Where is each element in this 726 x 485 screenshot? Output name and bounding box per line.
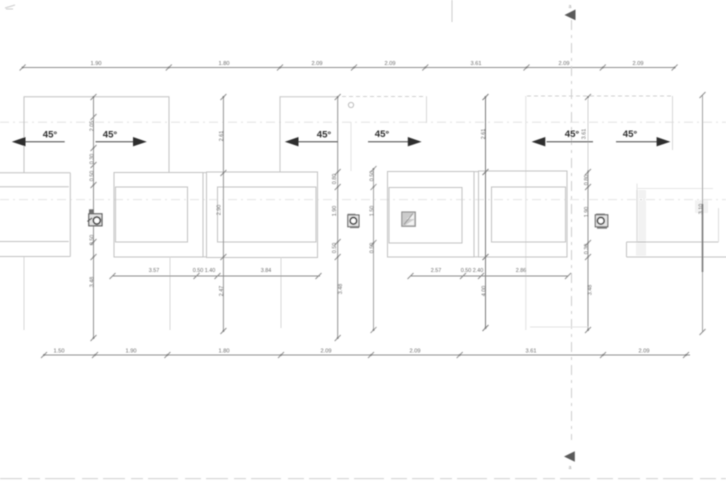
svg-text:2.61: 2.61 xyxy=(219,131,225,142)
svg-text:3.84: 3.84 xyxy=(261,268,272,274)
svg-text:3.10: 3.10 xyxy=(699,204,705,215)
svg-text:0.50 2.40: 0.50 2.40 xyxy=(461,268,483,274)
svg-text:0.80: 0.80 xyxy=(584,175,590,186)
svg-text:2.57: 2.57 xyxy=(431,268,442,274)
svg-text:2.05: 2.05 xyxy=(90,121,96,132)
svg-text:3.61: 3.61 xyxy=(526,349,537,355)
svg-text:0.30: 0.30 xyxy=(584,244,590,255)
svg-text:0.80: 0.80 xyxy=(332,174,338,185)
svg-text:2.09: 2.09 xyxy=(312,61,323,67)
svg-text:3.57: 3.57 xyxy=(149,268,160,274)
svg-text:3.61: 3.61 xyxy=(471,61,482,67)
svg-text:45°: 45° xyxy=(375,129,390,140)
svg-text:45°: 45° xyxy=(623,129,638,140)
svg-text:0.50: 0.50 xyxy=(90,171,96,182)
svg-text:1.50: 1.50 xyxy=(54,349,65,355)
svg-text:2.90: 2.90 xyxy=(217,205,223,216)
svg-text:4.00: 4.00 xyxy=(482,286,488,297)
svg-text:2.47: 2.47 xyxy=(219,286,225,297)
svg-text:1.50: 1.50 xyxy=(370,206,376,217)
svg-text:1.90: 1.90 xyxy=(126,349,137,355)
svg-text:3.61: 3.61 xyxy=(582,129,588,140)
svg-text:2.09: 2.09 xyxy=(633,61,644,67)
svg-text:2.09: 2.09 xyxy=(410,349,421,355)
svg-text:45°: 45° xyxy=(565,129,580,140)
svg-text:45°: 45° xyxy=(103,130,118,141)
svg-text:a: a xyxy=(569,4,572,10)
svg-text:3.48: 3.48 xyxy=(338,284,344,295)
svg-text:a: a xyxy=(569,465,572,471)
svg-text:0.50: 0.50 xyxy=(370,243,376,254)
svg-text:45°: 45° xyxy=(317,130,332,141)
svg-text:1.80: 1.80 xyxy=(219,61,230,67)
svg-text:2.09: 2.09 xyxy=(559,61,570,67)
svg-text:1.90: 1.90 xyxy=(332,206,338,217)
svg-text:2.86: 2.86 xyxy=(516,268,527,274)
svg-text:0.50 1.40: 0.50 1.40 xyxy=(193,268,215,274)
svg-text:2.09: 2.09 xyxy=(321,349,332,355)
svg-text:0.30: 0.30 xyxy=(90,154,96,165)
svg-text:1.90: 1.90 xyxy=(584,207,590,218)
svg-text:1.80: 1.80 xyxy=(219,349,230,355)
svg-text:2.09: 2.09 xyxy=(385,61,396,67)
svg-text:3.48: 3.48 xyxy=(588,285,594,296)
svg-text:1.90: 1.90 xyxy=(91,61,102,67)
svg-text:2.09: 2.09 xyxy=(639,349,650,355)
svg-text:2.61: 2.61 xyxy=(481,129,487,140)
svg-text:0.50: 0.50 xyxy=(332,243,338,254)
svg-text:3.48: 3.48 xyxy=(90,277,96,288)
svg-text:0.50: 0.50 xyxy=(90,235,96,246)
svg-text:45°: 45° xyxy=(43,130,58,141)
svg-text:0.50: 0.50 xyxy=(370,171,376,182)
